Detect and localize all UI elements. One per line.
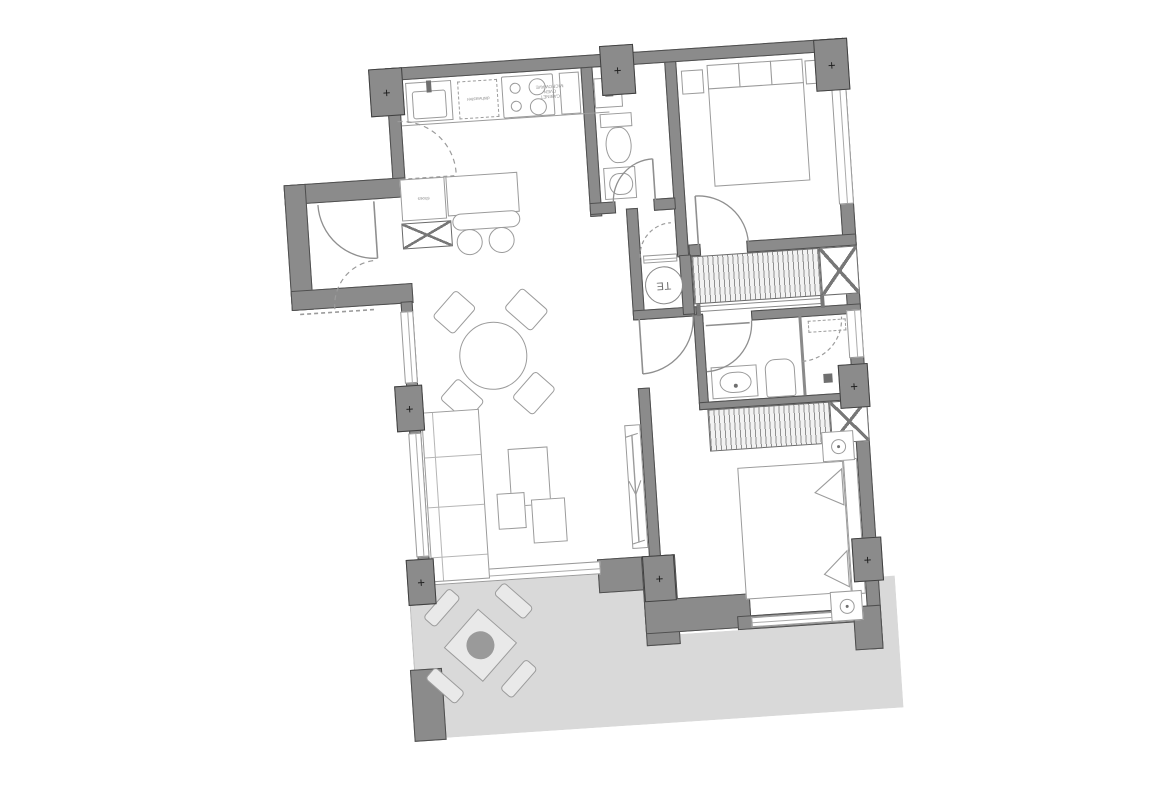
- column-cross: +: [655, 572, 663, 585]
- column-kitchen-top-left: +: [368, 67, 405, 117]
- column-cross: +: [863, 553, 871, 566]
- column-cross: +: [417, 575, 425, 588]
- floor-plan: + + + + + + + + dishwasher CABINET OVEN …: [270, 36, 915, 774]
- column-left-lower: +: [406, 558, 437, 606]
- floor-plan-page: { "plan": { "type": "apartment-floor-pla…: [0, 0, 1170, 785]
- column-right-lower: +: [851, 536, 884, 582]
- column-right-mid: +: [838, 363, 871, 409]
- column-cross: +: [828, 58, 836, 71]
- column-cross: +: [613, 63, 621, 76]
- column-cross: +: [405, 402, 413, 415]
- column-top-right: +: [813, 38, 850, 92]
- column-cross: +: [850, 379, 858, 392]
- column-terrace-junction: +: [642, 554, 677, 602]
- column-cross: +: [382, 86, 390, 99]
- door-swing-linework: [270, 36, 915, 774]
- column-top-middle: +: [599, 44, 636, 96]
- column-left-mid: +: [394, 385, 425, 433]
